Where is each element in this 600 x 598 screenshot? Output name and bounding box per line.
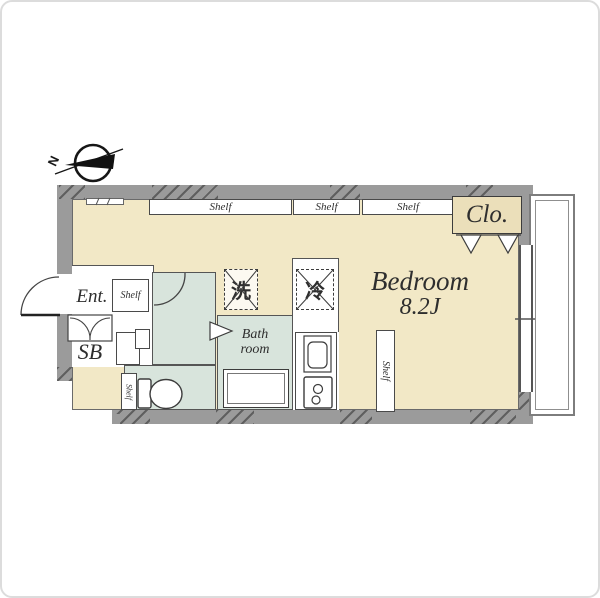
bedroom-shelf-box: Shelf: [376, 330, 395, 412]
shelf-label: Shelf: [380, 361, 391, 381]
shelf-label: Shelf: [121, 290, 141, 301]
bathtub-inner-line: [227, 373, 285, 404]
wall-hatch: [59, 185, 85, 199]
shelf-label: Shelf: [125, 384, 134, 400]
washroom-area: [152, 272, 216, 365]
compass-icon: N: [45, 145, 123, 181]
bedroom-label-group: Bedroom 8.2J: [350, 265, 490, 321]
floorplan-canvas: Bath room Shelf Shelf Shelf Clo. Bedroom…: [0, 0, 600, 598]
bedroom-size-label: 8.2J: [400, 295, 441, 320]
refrigerator-box: 冷: [296, 269, 334, 310]
washing-machine-label: 洗: [231, 275, 251, 304]
balcony: [529, 194, 575, 416]
entrance-shelf-box: Shelf: [112, 279, 149, 312]
shelf-label: Shelf: [210, 201, 232, 213]
entrance-label-text: Ent.: [76, 286, 107, 308]
shelf-label: Shelf: [316, 201, 338, 213]
wall-hatch: [216, 410, 254, 424]
bathroom-label-line2: room: [240, 342, 269, 357]
kitchen-counter: [295, 332, 337, 410]
balcony-inner-rail: [535, 200, 569, 410]
shelf-top-left: Shelf: [149, 199, 292, 215]
toilet-shelf-box: Shelf: [121, 373, 137, 410]
closet-label: Clo.: [466, 201, 508, 229]
closet-box: Clo.: [452, 196, 522, 234]
wall-hatch: [330, 185, 360, 199]
entrance-label: Ent.: [70, 286, 114, 308]
vent-strip: [86, 198, 124, 205]
washing-machine-box: 洗: [224, 269, 258, 310]
wall-hatch: [470, 410, 516, 424]
entry-fixture-basin: [135, 329, 150, 349]
shoebox-label: SB: [68, 340, 112, 364]
shelf-top-middle: Shelf: [293, 199, 360, 215]
bathroom-label-line1: Bath: [242, 327, 268, 342]
bathtub-icon: [223, 369, 289, 408]
sliding-window: [519, 245, 533, 392]
refrigerator-label: 冷: [305, 275, 325, 304]
toilet-area: [124, 365, 216, 410]
shelf-top-right: Shelf: [362, 199, 454, 215]
kitchen-partition-line: [338, 258, 339, 332]
wall-hatch: [152, 185, 218, 199]
entrance-door-icon: [21, 277, 60, 315]
bedroom-name-label: Bedroom: [371, 267, 469, 295]
north-label: N: [45, 154, 63, 169]
bathroom-label: Bath room: [218, 316, 292, 368]
wall-hatch: [340, 410, 372, 424]
shoebox-label-text: SB: [78, 339, 102, 365]
shelf-label: Shelf: [397, 201, 419, 213]
